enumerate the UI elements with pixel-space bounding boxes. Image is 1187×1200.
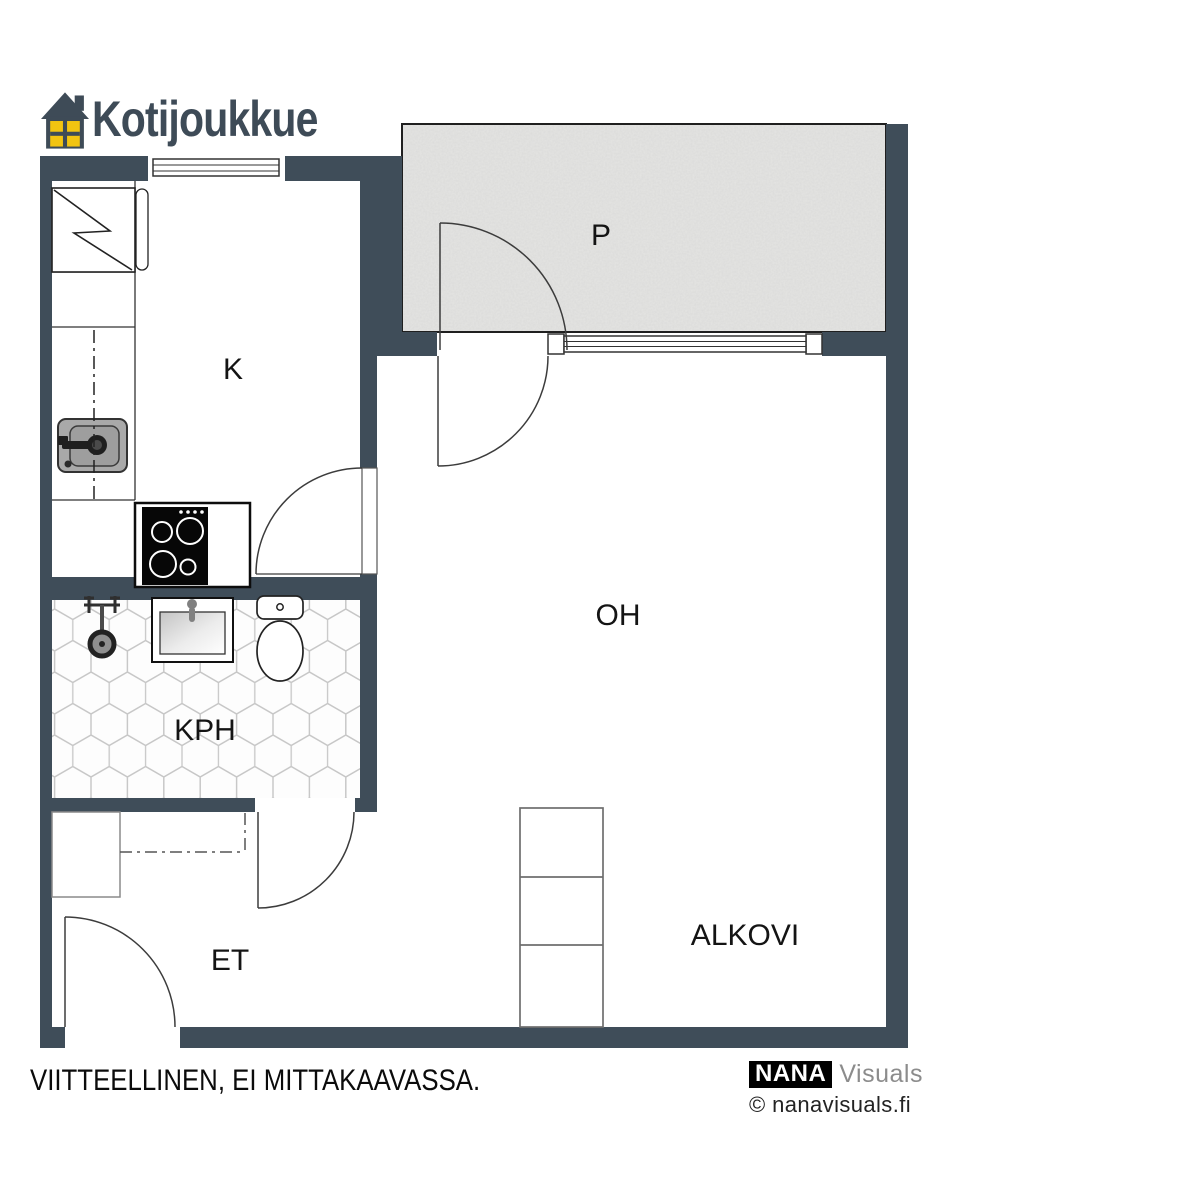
floor-plan-canvas: Kotijoukkue P K OH KPH ET ALKOVI VIITTEE… xyxy=(0,0,1187,1200)
room-label-balcony: P xyxy=(591,219,611,253)
bathroom-door xyxy=(258,812,354,908)
credit-site: © nanavisuals.fi xyxy=(749,1092,923,1118)
room-label-bathroom: KPH xyxy=(174,714,236,748)
front-door xyxy=(65,917,175,1027)
bathroom-sink xyxy=(152,598,233,662)
fridge xyxy=(52,188,135,272)
balcony-window xyxy=(548,334,822,354)
entry-closet xyxy=(52,812,120,897)
floor-plan-drawing xyxy=(0,0,1187,1200)
room-label-kitchen: K xyxy=(223,353,243,387)
entry-reservation-line xyxy=(120,813,245,852)
brand-name: Kotijoukkue xyxy=(92,90,318,148)
alcove-wardrobe xyxy=(520,808,603,1027)
credit-name: Visuals xyxy=(839,1060,923,1089)
living-room-balcony-door xyxy=(438,356,548,466)
room-label-living-room: OH xyxy=(596,599,641,633)
kitchen-door xyxy=(256,468,377,574)
stove xyxy=(135,503,250,587)
room-label-alcove: ALKOVI xyxy=(691,919,799,953)
disclaimer-text: VIITTEELLINEN, EI MITTAKAAVASSA. xyxy=(30,1064,480,1098)
kitchen-sink xyxy=(58,419,127,472)
credit-logo: NANA xyxy=(749,1061,832,1088)
kitchen-window xyxy=(153,159,279,176)
house-icon xyxy=(41,92,89,149)
credit-block: NANA Visuals © nanavisuals.fi xyxy=(749,1060,923,1118)
cabinet-door xyxy=(136,189,148,270)
toilet xyxy=(257,596,303,681)
room-label-entry-hall: ET xyxy=(211,944,249,978)
